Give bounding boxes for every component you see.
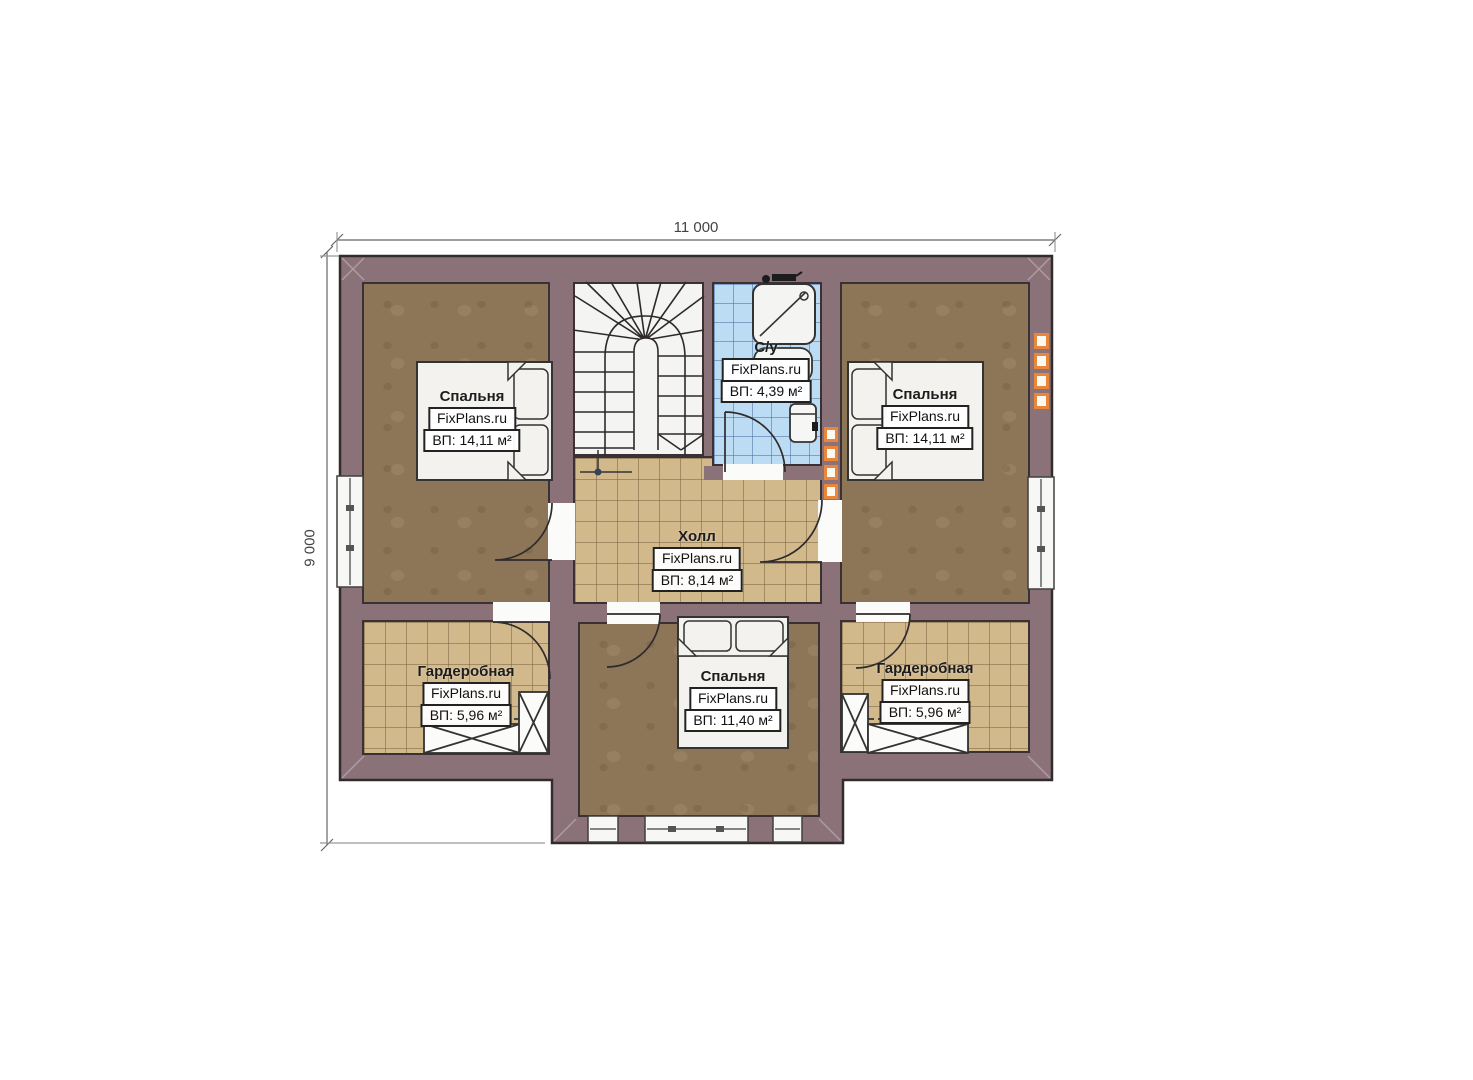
room-label-bedroom-right: Спальня FixPlans.ru ВП: 14,11 м² <box>876 386 973 450</box>
dimension-width-label: 11 000 <box>674 219 719 236</box>
vent-block <box>824 465 838 480</box>
area-label: ВП: 14,11 м² <box>423 429 520 453</box>
room-label-hall: Холл FixPlans.ru ВП: 8,14 м² <box>652 528 743 592</box>
vent-block <box>1034 373 1049 389</box>
brand-label: FixPlans.ru <box>428 407 516 431</box>
brand-label: FixPlans.ru <box>881 405 969 429</box>
room-name: Холл <box>652 528 743 545</box>
brand-label: FixPlans.ru <box>653 547 741 571</box>
door-opening-bedroom-bottom <box>607 602 660 624</box>
area-label: ВП: 14,11 м² <box>876 427 973 451</box>
room-label-wardrobe-right: Гардеробная FixPlans.ru ВП: 5,96 м² <box>876 660 973 724</box>
area-label: ВП: 4,39 м² <box>721 380 812 404</box>
room-label-bedroom-bottom: Спальня FixPlans.ru ВП: 11,40 м² <box>684 668 781 732</box>
floor-plan-canvas: 11 000 9 000 Спальня FixPlans.ru ВП: 14,… <box>0 0 1473 1080</box>
room-name: Спальня <box>423 388 520 405</box>
brand-label: FixPlans.ru <box>422 682 510 706</box>
brand-label: FixPlans.ru <box>689 687 777 711</box>
dimension-arrow <box>321 246 333 851</box>
room-label-bathroom: С/у FixPlans.ru ВП: 4,39 м² <box>721 339 812 403</box>
room-label-bedroom-left: Спальня FixPlans.ru ВП: 14,11 м² <box>423 388 520 452</box>
door-opening-wardrobe-left <box>493 602 550 622</box>
door-opening-bathroom <box>723 464 783 480</box>
room-name: Спальня <box>876 386 973 403</box>
room-name: Спальня <box>684 668 781 685</box>
vent-block <box>1034 353 1049 369</box>
dimension-height-label: 9 000 <box>302 529 319 567</box>
room-name: Гардеробная <box>417 663 514 680</box>
vent-block <box>824 484 838 499</box>
vent-block <box>824 427 838 442</box>
room-label-wardrobe-left: Гардеробная FixPlans.ru ВП: 5,96 м² <box>417 663 514 727</box>
door-opening-bedroom-right <box>818 500 842 562</box>
area-label: ВП: 5,96 м² <box>880 701 971 725</box>
brand-label: FixPlans.ru <box>722 358 810 382</box>
room-name: С/у <box>721 339 812 356</box>
area-label: ВП: 11,40 м² <box>684 709 781 733</box>
door-opening-bedroom-left <box>548 503 575 560</box>
vent-block <box>1034 333 1049 349</box>
door-opening-wardrobe-right <box>856 602 910 622</box>
room-staircase <box>573 282 704 456</box>
area-label: ВП: 5,96 м² <box>421 704 512 728</box>
room-name: Гардеробная <box>876 660 973 677</box>
vent-block <box>824 446 838 461</box>
brand-label: FixPlans.ru <box>881 679 969 703</box>
area-label: ВП: 8,14 м² <box>652 569 743 593</box>
vent-block <box>1034 393 1049 409</box>
